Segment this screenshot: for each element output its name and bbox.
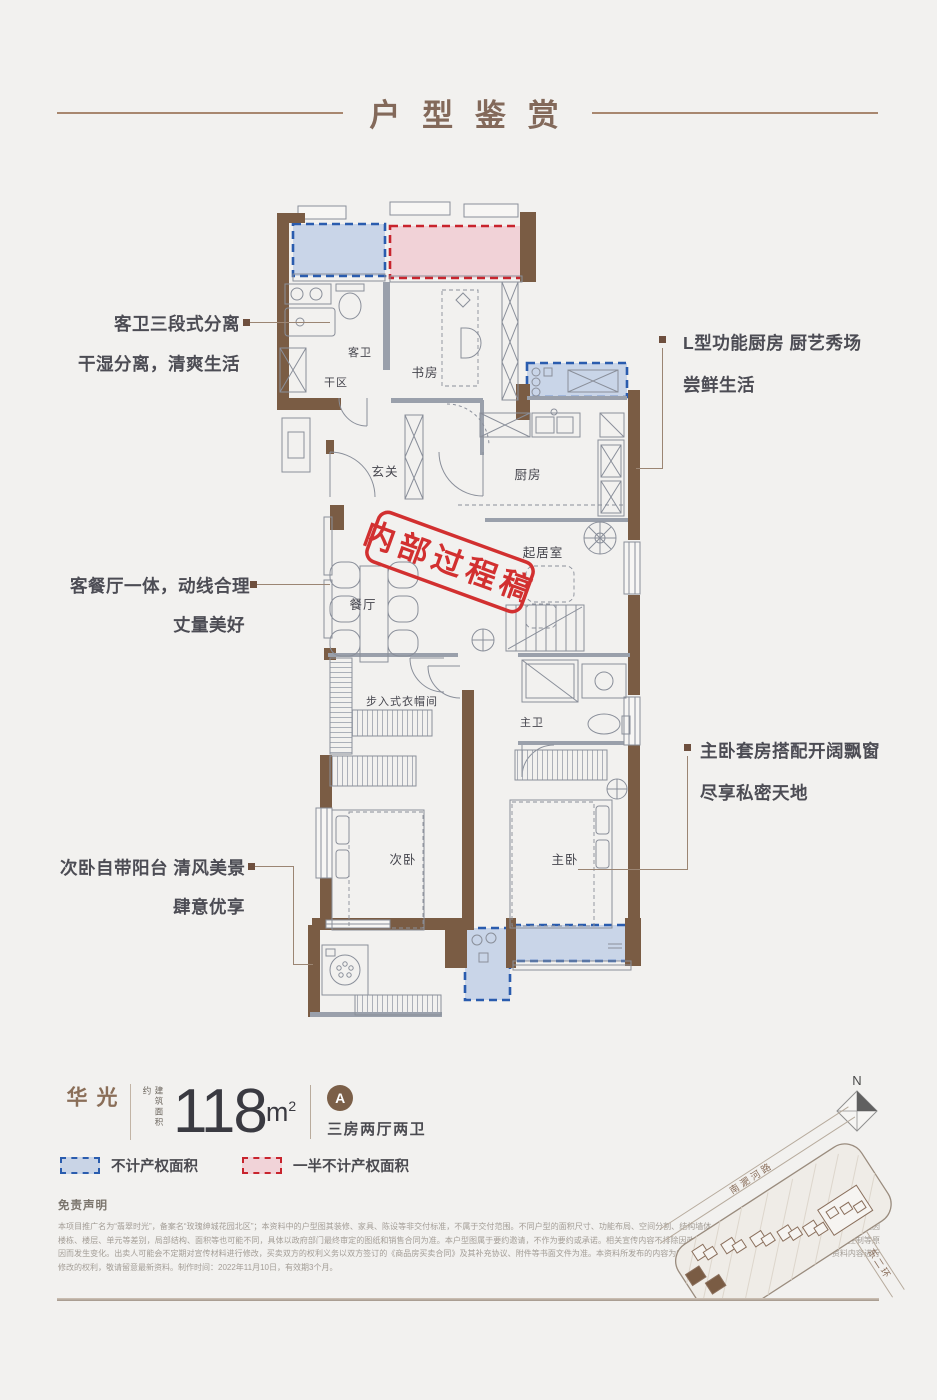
layout-text: 三房两厅两卫	[327, 1118, 426, 1139]
internal-draft-stamp: 内部过程稿	[357, 507, 544, 617]
room-label-dry-area: 干区	[324, 377, 348, 389]
legend-red-label: 一半不计产权面积	[293, 1155, 409, 1176]
bedroom-furniture	[330, 750, 627, 930]
room-label-kitchen: 厨房	[514, 467, 541, 482]
legend-item-red: 一半不计产权面积	[242, 1155, 409, 1176]
stamp-text: 内部过程稿	[359, 515, 540, 609]
callout-line	[250, 322, 330, 323]
header: 户 型 鉴 赏	[57, 90, 878, 135]
road-right: 东二环	[854, 1231, 904, 1297]
room-label-second-bedroom: 次卧	[389, 853, 416, 867]
callout-line	[257, 584, 330, 585]
callout-line	[636, 468, 663, 469]
callout-line	[578, 869, 688, 870]
floorplan-poster: 户 型 鉴 赏	[0, 0, 937, 1400]
callout-marker	[684, 744, 691, 751]
callout-kitchen-line1: L型功能厨房 厨艺秀场	[683, 330, 862, 355]
callout-marker	[659, 336, 666, 343]
area-label: 建筑面积约	[141, 1086, 165, 1138]
room-label-guest-bath: 客卫	[348, 345, 372, 359]
study-furniture	[442, 282, 518, 400]
room-label-foyer: 玄关	[371, 464, 398, 479]
compass-north-label: N	[852, 1073, 861, 1088]
callout-kitchen-line2: 尝鲜生活	[683, 372, 755, 397]
legend-red-swatch	[242, 1157, 282, 1174]
roof-platforms	[298, 202, 518, 219]
site-map: N 南淝河路 东二环	[660, 1065, 915, 1300]
page-title: 户 型 鉴 赏	[369, 90, 565, 135]
zone-red-top	[390, 226, 522, 278]
callout-master-line2: 尽享私密天地	[700, 780, 808, 805]
unit-type: A 三房两厅两卫	[327, 1085, 426, 1139]
room-label-study: 书房	[411, 365, 438, 380]
callout-line	[255, 866, 293, 867]
floorplan-drawing: 内部过程稿	[270, 200, 670, 1050]
unit-name: 光华	[60, 1084, 131, 1140]
area-value: 118	[173, 1085, 266, 1139]
callout-dining-line1: 客餐厅一体，动线合理	[70, 573, 245, 598]
compass-icon: N	[837, 1073, 877, 1131]
footer-rule	[57, 1298, 879, 1301]
unit-badge: A	[327, 1085, 353, 1111]
legend-blue-swatch	[60, 1157, 100, 1174]
header-rule-right	[592, 112, 878, 114]
room-label-closet: 步入式衣帽间	[366, 694, 438, 708]
spec-block: 光华 建筑面积约 118 m2 A 三房两厅两卫	[60, 1084, 426, 1140]
legend: 不计产权面积 一半不计产权面积	[60, 1155, 409, 1176]
callout-master-line1: 主卧套房搭配开阔飘窗	[700, 738, 880, 763]
callout-dining-line2: 丈量美好	[70, 612, 245, 637]
entry-cabinet	[282, 418, 310, 472]
callout-balcony-line1: 次卧自带阳台 清风美景	[60, 855, 245, 880]
zone-blue-top	[293, 224, 385, 276]
room-label-master-bedroom: 主卧	[551, 853, 578, 867]
foyer-fixtures	[330, 404, 489, 499]
callout-line	[662, 348, 663, 468]
divider	[310, 1085, 311, 1139]
room-label-master-bath: 主卫	[520, 716, 544, 729]
callout-marker	[250, 581, 257, 588]
callout-line	[293, 964, 313, 965]
callout-marker	[243, 319, 250, 326]
site-plan: 南淝河路	[660, 1107, 910, 1300]
legend-item-blue: 不计产权面积	[60, 1155, 198, 1176]
dining-furniture	[330, 562, 418, 662]
callout-marker	[248, 863, 255, 870]
area-unit: m2	[266, 1097, 296, 1128]
callout-balcony-line2: 肆意优享	[60, 894, 245, 919]
zone-blue-baywindow	[513, 925, 631, 961]
room-label-living: 起居室	[523, 545, 564, 560]
callout-line	[293, 866, 294, 965]
header-rule-left	[57, 112, 343, 114]
callout-line	[687, 756, 688, 870]
legend-blue-label: 不计产权面积	[111, 1155, 198, 1176]
callout-guest-bath-line1: 客卫三段式分离	[60, 311, 240, 336]
room-label-dining: 餐厅	[349, 597, 376, 612]
washing-machine-icon	[330, 955, 360, 985]
callout-guest-bath-line2: 干湿分离，清爽生活	[60, 351, 240, 376]
